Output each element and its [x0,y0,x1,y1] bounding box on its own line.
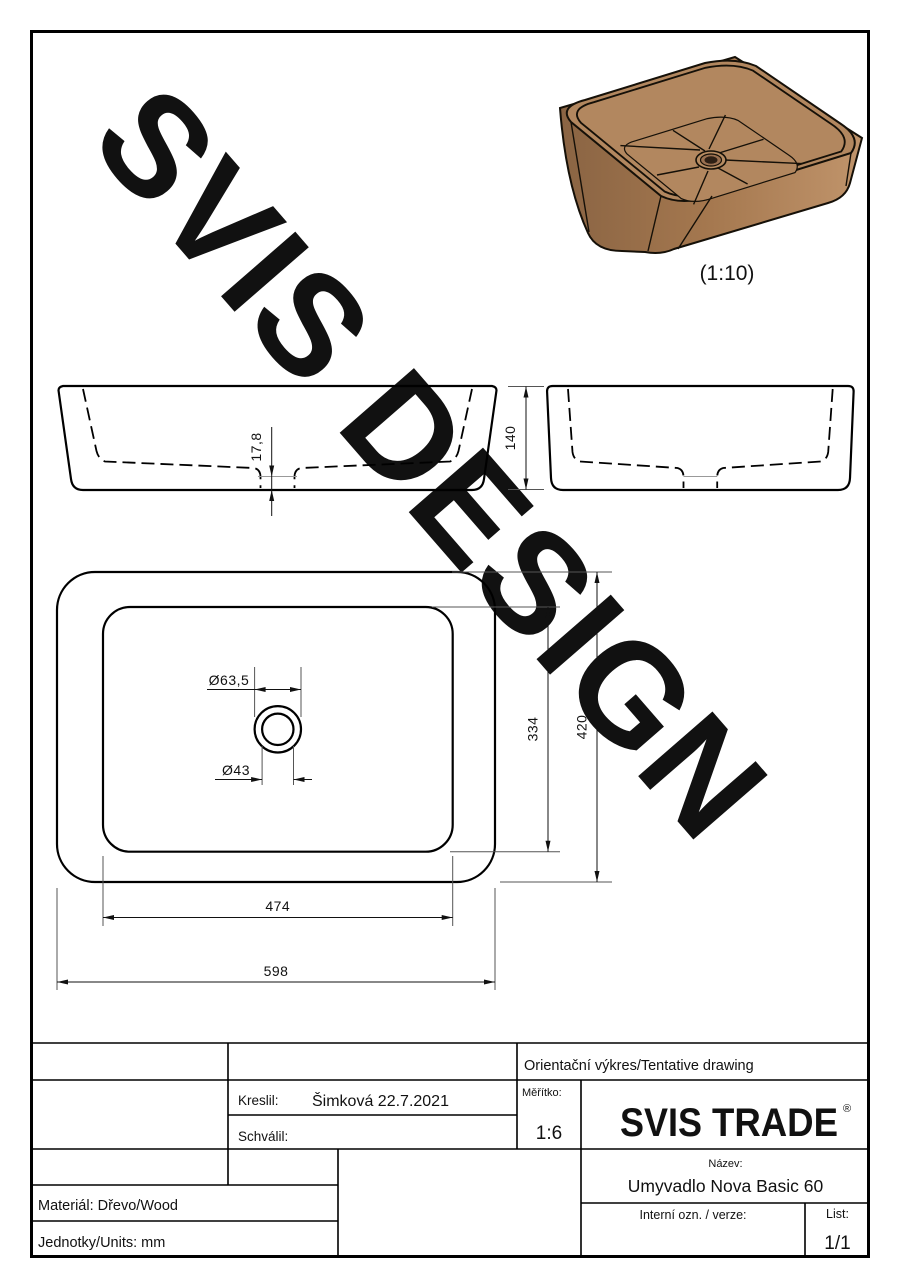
drain-inner-circle [262,714,293,745]
title-block: Orientační výkres/Tentative drawing Kres… [30,1043,870,1258]
dim-side-height: 140 [502,426,518,451]
drawing-sheet: SVIS DESIGN 17,8 140 Ø63,5 Ø43 334 420 4… [0,0,900,1288]
dim-outer-width: 420 [574,715,590,740]
kreslil-value: Šimková 22.7.2021 [312,1091,449,1110]
interni-label: Interní ozn. / verze: [640,1208,747,1222]
dim-drain-outer: Ø63,5 [209,672,250,688]
logo-registered-mark: ® [843,1103,851,1115]
dim-front-recess: 17,8 [248,432,264,461]
list-value: 1/1 [824,1233,850,1254]
logo-trade: TRADE [712,1101,838,1145]
dim-inner-length: 474 [265,898,290,914]
top-outer-rect [57,572,495,882]
side-view: 140 [502,386,854,490]
nazev-label: Název: [708,1158,742,1170]
material-label: Materiál: Dřevo/Wood [38,1198,178,1214]
list-label: List: [826,1207,849,1221]
schvalil-label: Schválil: [238,1129,288,1144]
drain-hole [705,156,718,164]
meritko-value: 1:6 [536,1123,562,1144]
tentative-drawing-note: Orientační výkres/Tentative drawing [524,1058,754,1074]
technical-drawing: SVIS DESIGN 17,8 140 Ø63,5 Ø43 334 420 4… [0,0,900,1288]
dim-inner-width: 334 [525,717,541,742]
logo-svis: SVIS [620,1101,702,1145]
side-outline [547,386,854,490]
title-block-grid [30,1043,870,1258]
units-label: Jednotky/Units: mm [38,1235,165,1251]
dim-outer-length: 598 [264,963,289,979]
side-hidden-lines [568,389,833,488]
iso-view: (1:10) [560,57,862,285]
meritko-label: Měřítko: [522,1087,562,1099]
nazev-value: Umyvadlo Nova Basic 60 [628,1176,824,1196]
iso-scale-label: (1:10) [700,262,755,285]
dim-drain-inner: Ø43 [222,762,250,778]
top-inner-rect [103,607,453,852]
kreslil-label: Kreslil: [238,1093,279,1108]
